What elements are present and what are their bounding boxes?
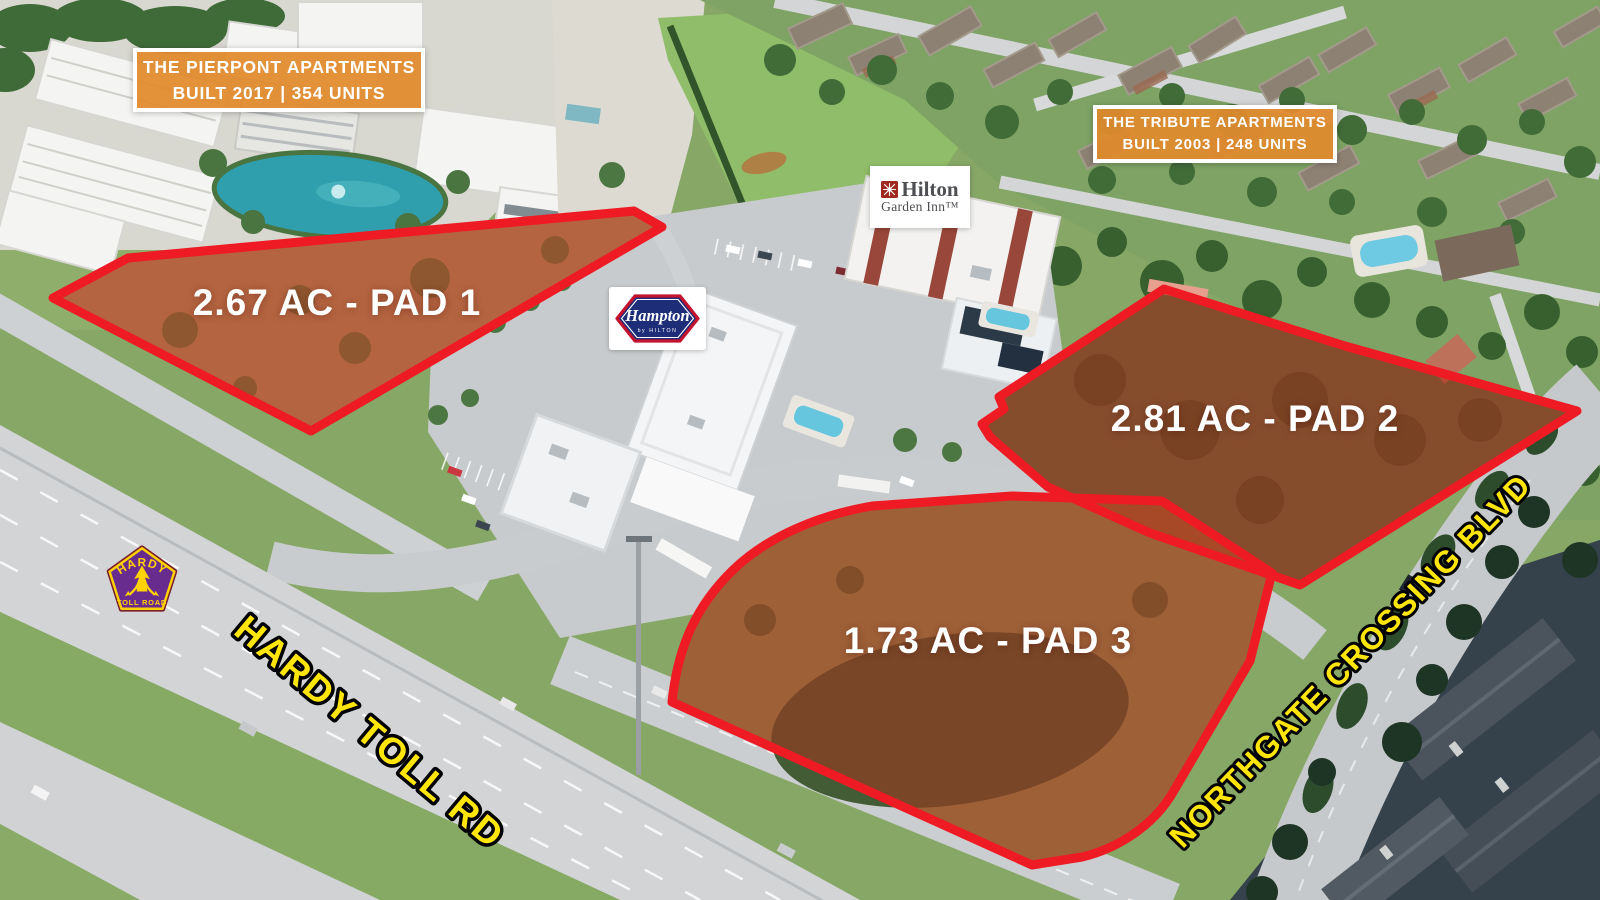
hampton-wordmark: Hampton: [624, 306, 689, 325]
pierpont-banner: THE PIERPONT APARTMENTS BUILT 2017 | 354…: [133, 48, 425, 112]
pad-1-label: 2.67 AC - PAD 1: [193, 282, 481, 324]
pierpont-banner-stats: BUILT 2017 | 354 UNITS: [137, 80, 421, 106]
hampton-byline: by HILTON: [638, 328, 678, 334]
pad-3-label: 1.73 AC - PAD 3: [844, 620, 1132, 662]
hardy-toll-road-shield: HARDY TOLL ROAD: [106, 545, 178, 612]
pad-2-label: 2.81 AC - PAD 2: [1111, 398, 1399, 440]
pierpont-banner-name: THE PIERPONT APARTMENTS: [137, 54, 421, 80]
tribute-banner: THE TRIBUTE APARTMENTS BUILT 2003 | 248 …: [1093, 105, 1337, 163]
aerial-photo-background: [0, 0, 1600, 900]
hilton-garden-inn-icon: [881, 181, 898, 198]
tribute-banner-name: THE TRIBUTE APARTMENTS: [1097, 112, 1333, 135]
hilton-wordmark: Hilton: [901, 179, 958, 200]
hardy-shield-bottom-text: TOLL ROAD: [117, 598, 167, 607]
garden-inn-wordmark: Garden Inn™: [881, 200, 959, 215]
hampton-hexagon-icon: Hampton by HILTON: [613, 291, 702, 346]
aerial-site-map: HARDY TOLL RD NORTHGATE CROSSING BLVD TH…: [0, 0, 1600, 900]
tribute-banner-stats: BUILT 2003 | 248 UNITS: [1097, 134, 1333, 157]
hampton-logo: Hampton by HILTON: [609, 287, 706, 350]
hilton-garden-inn-logo: Hilton Garden Inn™: [870, 166, 970, 228]
